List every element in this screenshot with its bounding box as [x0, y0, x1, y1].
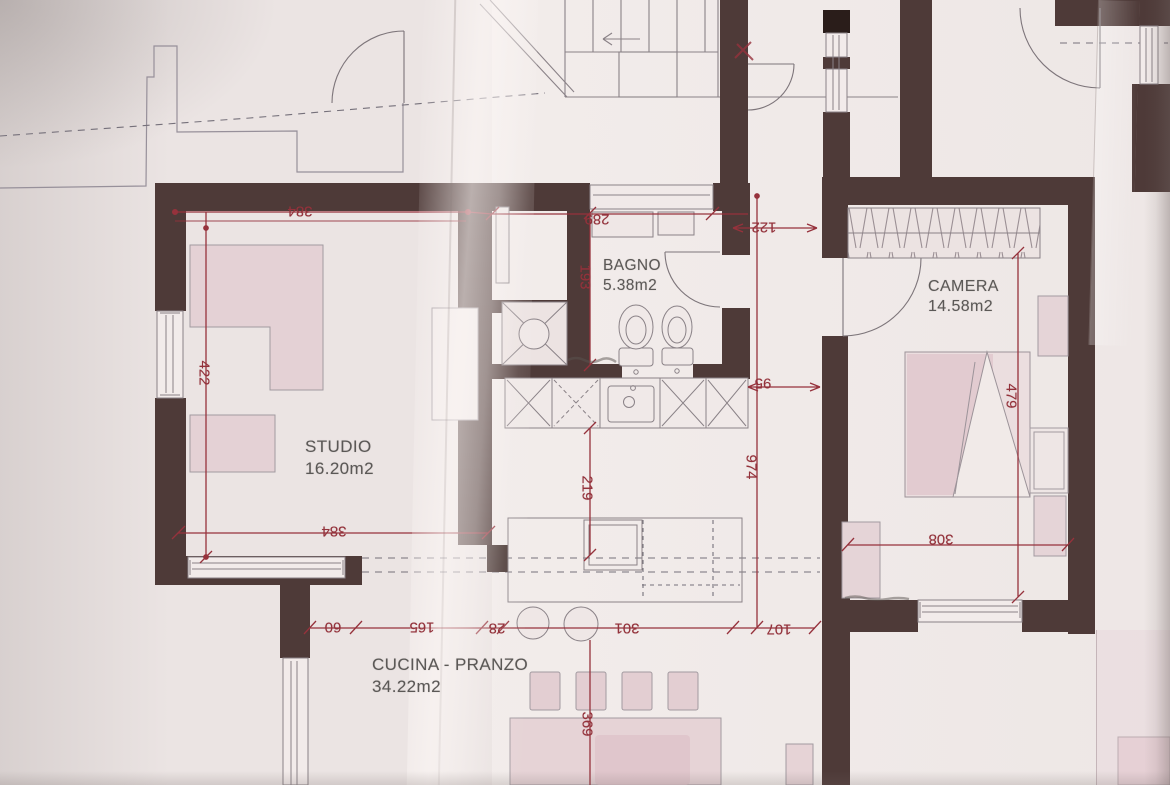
adjacent-unit-outline: [0, 46, 403, 188]
floorplan-photo: STUDIO 16.20m2 BAGNO 5.38m2 CAMERA 14.58…: [0, 0, 1170, 785]
glass-door-bottom-left: [283, 658, 308, 785]
bed: [905, 352, 1030, 497]
window-bagno-top: [590, 185, 713, 209]
paper-fold-highlight: [407, 0, 539, 785]
bidet: [662, 306, 693, 373]
studio-cabinet: [190, 415, 275, 472]
kitchen-island: [508, 518, 742, 602]
kitchen-counter: [505, 378, 748, 428]
window-camera-bottom: [918, 600, 1022, 622]
dark-door-panel: [823, 10, 850, 33]
paper-edge-bottom: [0, 771, 1170, 785]
nightstand: [1034, 496, 1066, 556]
nightstand: [1038, 296, 1068, 356]
window-studio-bottom: [188, 557, 345, 578]
window-hall-column: [826, 33, 847, 112]
door-landing: [332, 31, 404, 103]
floorplan-drawing: [0, 0, 1170, 785]
door-bagno: [665, 252, 720, 307]
toilet: [619, 305, 653, 374]
paper-edge-right: [1144, 0, 1170, 785]
door-camera: [843, 258, 921, 336]
bagno-cabinets: [592, 212, 694, 237]
dresser: [842, 522, 880, 598]
dining-chairs: [530, 672, 698, 710]
door-entry-hall: [748, 64, 794, 110]
studio-desk: [190, 245, 323, 390]
stool: [564, 607, 598, 641]
nightstand: [1030, 428, 1068, 493]
window-studio-left: [157, 311, 183, 398]
furniture: [190, 207, 1170, 785]
wardrobe: [848, 208, 1040, 258]
